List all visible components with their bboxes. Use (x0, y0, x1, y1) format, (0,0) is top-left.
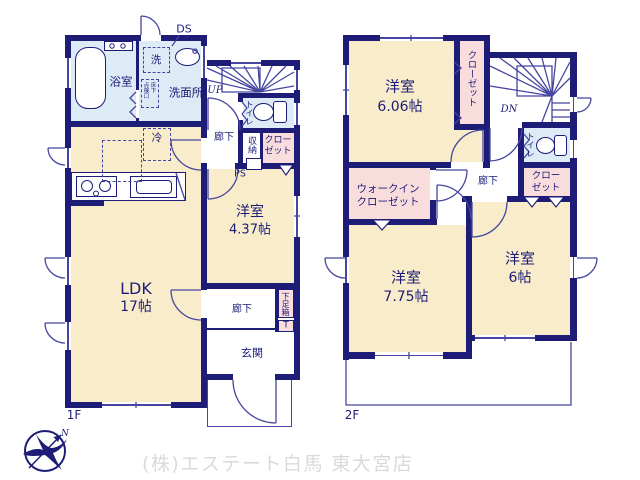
label-inspection-right: 床下 (149, 82, 155, 93)
bath-counter-knob-a (110, 44, 114, 48)
label-stairs-down: DN (501, 105, 518, 115)
label-bedroom6: 洋室 (505, 252, 535, 267)
label-toilet-1f: トイレ (244, 100, 253, 126)
window-arc-775-left (325, 258, 345, 278)
label-closet-1f-line1: クロー (264, 137, 291, 146)
burner-left (82, 181, 93, 192)
plan-linework (0, 0, 640, 480)
label-bedroom6-size: 6帖 (509, 271, 532, 285)
door-arc-stairs-1f (208, 98, 240, 130)
chevron-closet-2f (454, 62, 461, 124)
label-bedroom606-size: 6.06帖 (377, 100, 422, 114)
label-toilet-2f: トイレ (525, 132, 534, 158)
window-arc-left-3 (45, 323, 65, 343)
label-hall-lower: 廊下 (232, 305, 252, 315)
label-closet-1f-line2: ゼット (264, 148, 291, 157)
closet2f-vmark-b (548, 197, 564, 207)
ds-pointer-line (172, 36, 179, 46)
label-floor2: 2F (345, 409, 360, 421)
door-arc-hall-stairs-2f (490, 128, 522, 161)
floor-plan: 浴室 洗 洗面所 DS 床下 点検口 UP トイレ 廊下 収納 クロー ゼット … (0, 0, 640, 480)
label-shoe-box: 下足箱 (281, 292, 289, 316)
door-arc-bedroom775 (437, 185, 471, 219)
window-arc-left-1 (48, 148, 65, 165)
wic-vmark (373, 220, 391, 230)
label-bedroom775-size: 7.75帖 (383, 290, 428, 304)
door-arc-bedroom6 (472, 202, 507, 237)
label-floor1: 1F (67, 409, 82, 421)
label-shoe-tall: T (283, 322, 289, 331)
burner-right (100, 181, 111, 192)
door-arc-ldk-lower (171, 290, 201, 320)
label-inspection-left: 点検口 (142, 82, 148, 99)
label-washroom: 洗面所 (169, 87, 204, 99)
label-ldk: LDK (120, 281, 152, 297)
label-pipe-space: PS (234, 169, 246, 179)
window-arc-6-right (577, 258, 597, 278)
label-wic-line1: ウォークイン (357, 184, 420, 195)
compass-logo: N (20, 426, 70, 476)
door-arc-entrance (233, 380, 276, 423)
compass-n: N (60, 429, 70, 439)
door-arc-bedroom606 (451, 130, 483, 162)
window-arc-stairs-2f (577, 98, 591, 112)
label-hall-2f: 廊下 (478, 177, 498, 187)
closet-vmark-1f (279, 165, 293, 175)
chevron-bath-door (130, 92, 136, 118)
label-storage: 収納 (246, 136, 255, 154)
label-closet2f-line1: クロー (532, 171, 561, 181)
label-hall-upper: 廊下 (214, 133, 234, 143)
company-name: (株)エステート白馬 東大宮店 (142, 449, 413, 476)
basin-faucet (193, 49, 197, 53)
balcony-outline (346, 342, 571, 405)
label-stairs-up: UP (207, 86, 222, 96)
label-duct-space: DS (176, 24, 191, 35)
label-ldk-size: 17帖 (120, 300, 152, 314)
label-wic-line2: クローゼット (357, 197, 420, 208)
label-bedroom437-size: 4.37帖 (229, 224, 271, 237)
label-closet2f-line2: ゼット (532, 183, 561, 193)
closet2f-vmark-a (524, 197, 540, 207)
label-entrance: 玄関 (241, 348, 263, 359)
counter-diagonal (176, 173, 185, 200)
label-bedroom775: 洋室 (391, 271, 421, 286)
label-washer: 洗 (151, 55, 162, 66)
door-arc-washroom-ext (141, 16, 160, 35)
burner-small (94, 191, 99, 196)
window-arc-left-2 (45, 258, 65, 278)
label-fridge: 冷 (152, 133, 163, 144)
label-closet-2f-tall: クローゼット (466, 50, 476, 107)
label-bedroom437: 洋室 (236, 205, 264, 219)
label-bedroom606: 洋室 (385, 80, 415, 95)
door-arc-ldk-upper (171, 140, 201, 170)
bath-counter-knob-b (121, 44, 125, 48)
label-bath: 浴室 (110, 76, 133, 88)
